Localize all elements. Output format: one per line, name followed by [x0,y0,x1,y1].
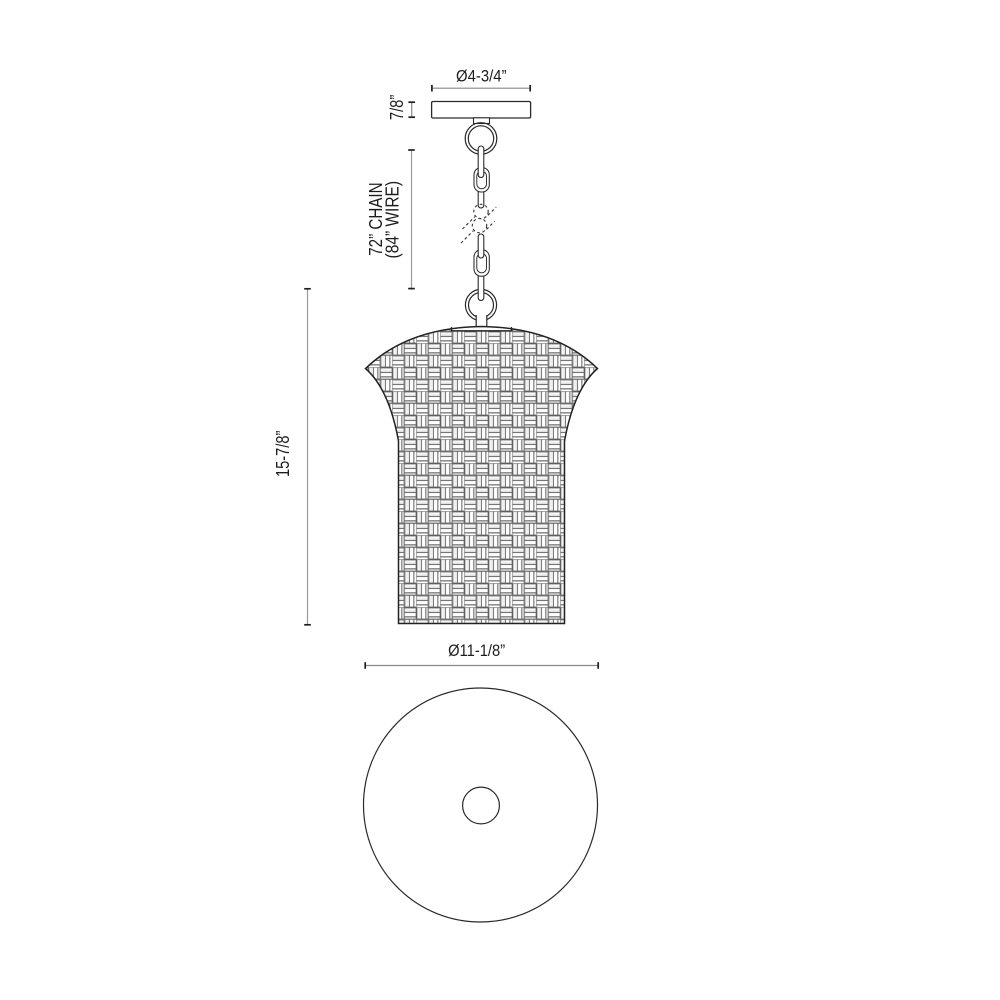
svg-text:Ø4-3/4”: Ø4-3/4” [456,67,507,86]
svg-text:15-7/8”: 15-7/8” [273,431,293,478]
svg-text:(84” WIRE): (84” WIRE) [383,181,403,259]
svg-text:Ø11-1/8”: Ø11-1/8” [448,641,505,660]
svg-text:7/8”: 7/8” [387,95,407,120]
